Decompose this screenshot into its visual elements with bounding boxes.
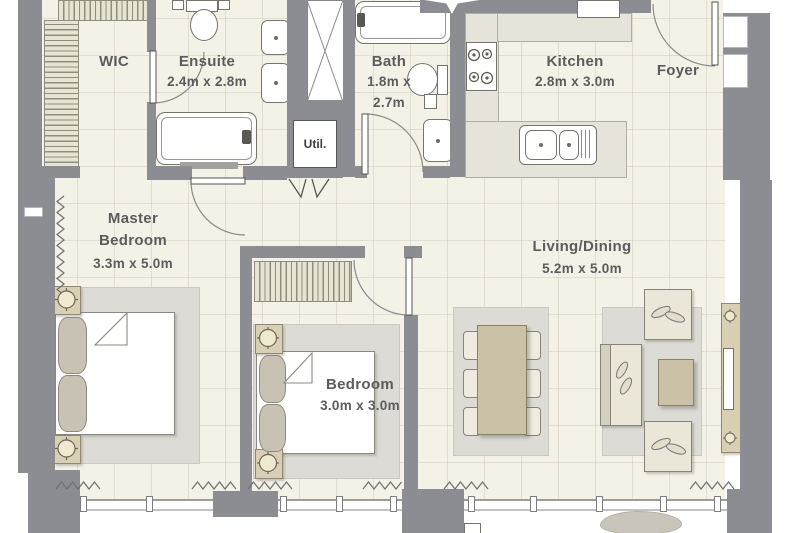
bedroom-wardrobe [254,261,352,302]
ensuite-dimensions: 2.4m x 2.8m [167,74,247,89]
bedroom-label: Bedroom [326,376,394,393]
master-bedroom-label-line1: Master [108,210,158,227]
wic-hanging-rail-top [58,0,150,21]
window-mullion-icon [660,496,667,512]
ensuite-cistern-left-icon [172,0,184,10]
wall-top-kitchen-a [420,0,577,13]
ensuite-bathtub-inner [161,117,252,160]
ensuite-bath-tap-icon [242,130,251,144]
wic-hanging-rail-left [44,20,79,168]
balcony-plant-icon [600,511,682,533]
master-nightstand-1 [54,286,81,315]
kitchen-drainer-icon [581,130,593,158]
wall-wet-bottom-b [147,166,192,180]
window-pier-2 [402,489,464,533]
bath-shelf-icon [424,94,437,109]
wall-left-mid [18,175,55,473]
window-mullion-icon [530,496,537,512]
window-pier-right [727,489,772,533]
duct-shaft-icon [307,0,345,104]
master-pillow-2 [58,375,87,432]
wall-wet-bottom-c [243,166,287,180]
wall-bath-bottom-a [355,166,367,178]
kitchen-basin-right-icon [559,130,579,160]
wall-inter-bedroom [240,250,252,493]
master-nightstand-2 [54,435,81,464]
ensuite-sink-1-icon [261,20,290,55]
coffee-ottoman [658,359,694,406]
stove-icon [466,42,497,91]
bath-label: Bath [372,53,407,70]
armchair-top [644,289,692,340]
bath-tap-icon [357,13,365,27]
bedroom-pillow-1 [259,355,286,403]
sofa [600,344,642,426]
bath-toilet-tank-icon [437,65,448,95]
floor-plan: Util. [0,0,800,533]
kitchen-label: Kitchen [546,53,603,70]
master-pillow-1 [58,317,87,374]
living-dining-label: Living/Dining [533,238,632,255]
wall-bath-kitchen [450,0,465,177]
ensuite-cistern-right-icon [218,0,230,10]
left-wall-window-icon [24,207,43,217]
wall-left-upper [18,0,42,178]
window-mullion-icon [714,496,721,512]
kitchen-basin-left-icon [525,130,557,160]
util-label: Util. [304,137,327,151]
dining-table [477,325,527,435]
master-bedroom-dimensions: 3.3m x 5.0m [93,256,173,271]
wall-bedroom-top [240,246,365,258]
bath-dimensions-line2: 2.7m [373,95,405,110]
ensuite-sink-2-icon [261,63,290,103]
wall-bedroom-right [404,315,418,493]
window-mullion-icon [280,496,287,512]
wall-ensuite-shaft [287,0,307,103]
wall-wic-ensuite-a [147,0,156,52]
window-mullion-icon [80,496,87,512]
wall-shaft-bath [343,0,355,177]
wall-right-lower [740,180,772,533]
wall-top-kitchen-b [617,0,651,13]
window-mullion-icon [146,496,153,512]
fridge-icon [577,0,620,18]
wall-wic-ensuite-b [147,102,156,168]
tv-screen-icon [723,348,734,410]
right-wall-recess-1 [723,16,748,48]
wall-left-bottom-block [28,470,80,533]
ensuite-label: Ensuite [179,53,235,70]
window-mullion-icon [336,496,343,512]
bedroom-nightstand-2 [255,449,283,479]
util-closet: Util. [293,120,337,168]
window-mullion-icon [596,496,603,512]
window-pier-1 [213,491,278,517]
bath-toilet-icon [407,63,438,96]
wall-bedroom-right-stub [404,246,422,258]
master-bedroom-label-line2: Bedroom [99,232,167,249]
wall-bath-bottom-b [423,166,450,178]
living-dining-dimensions: 5.2m x 5.0m [542,261,622,276]
kitchen-dimensions: 2.8m x 3.0m [535,74,615,89]
bath-sink-icon [423,119,453,162]
bedroom-dimensions: 3.0m x 3.0m [320,398,400,413]
right-wall-recess-2 [723,54,748,88]
window-mullion-icon [468,496,475,512]
balcony-planter-icon [464,523,481,533]
wic-label: WIC [99,53,129,70]
wall-wet-bottom-a [42,166,80,178]
foyer-label: Foyer [657,62,699,79]
ensuite-toilet-icon [190,9,218,41]
bedroom-pillow-2 [259,404,286,452]
top-right-outside [723,0,800,13]
bedroom-nightstand-1 [255,324,283,354]
sofa-back [601,345,611,425]
armchair-bottom [644,421,692,472]
window-mullion-icon [390,496,397,512]
bath-dimensions-line1: 1.8m x [367,74,411,89]
